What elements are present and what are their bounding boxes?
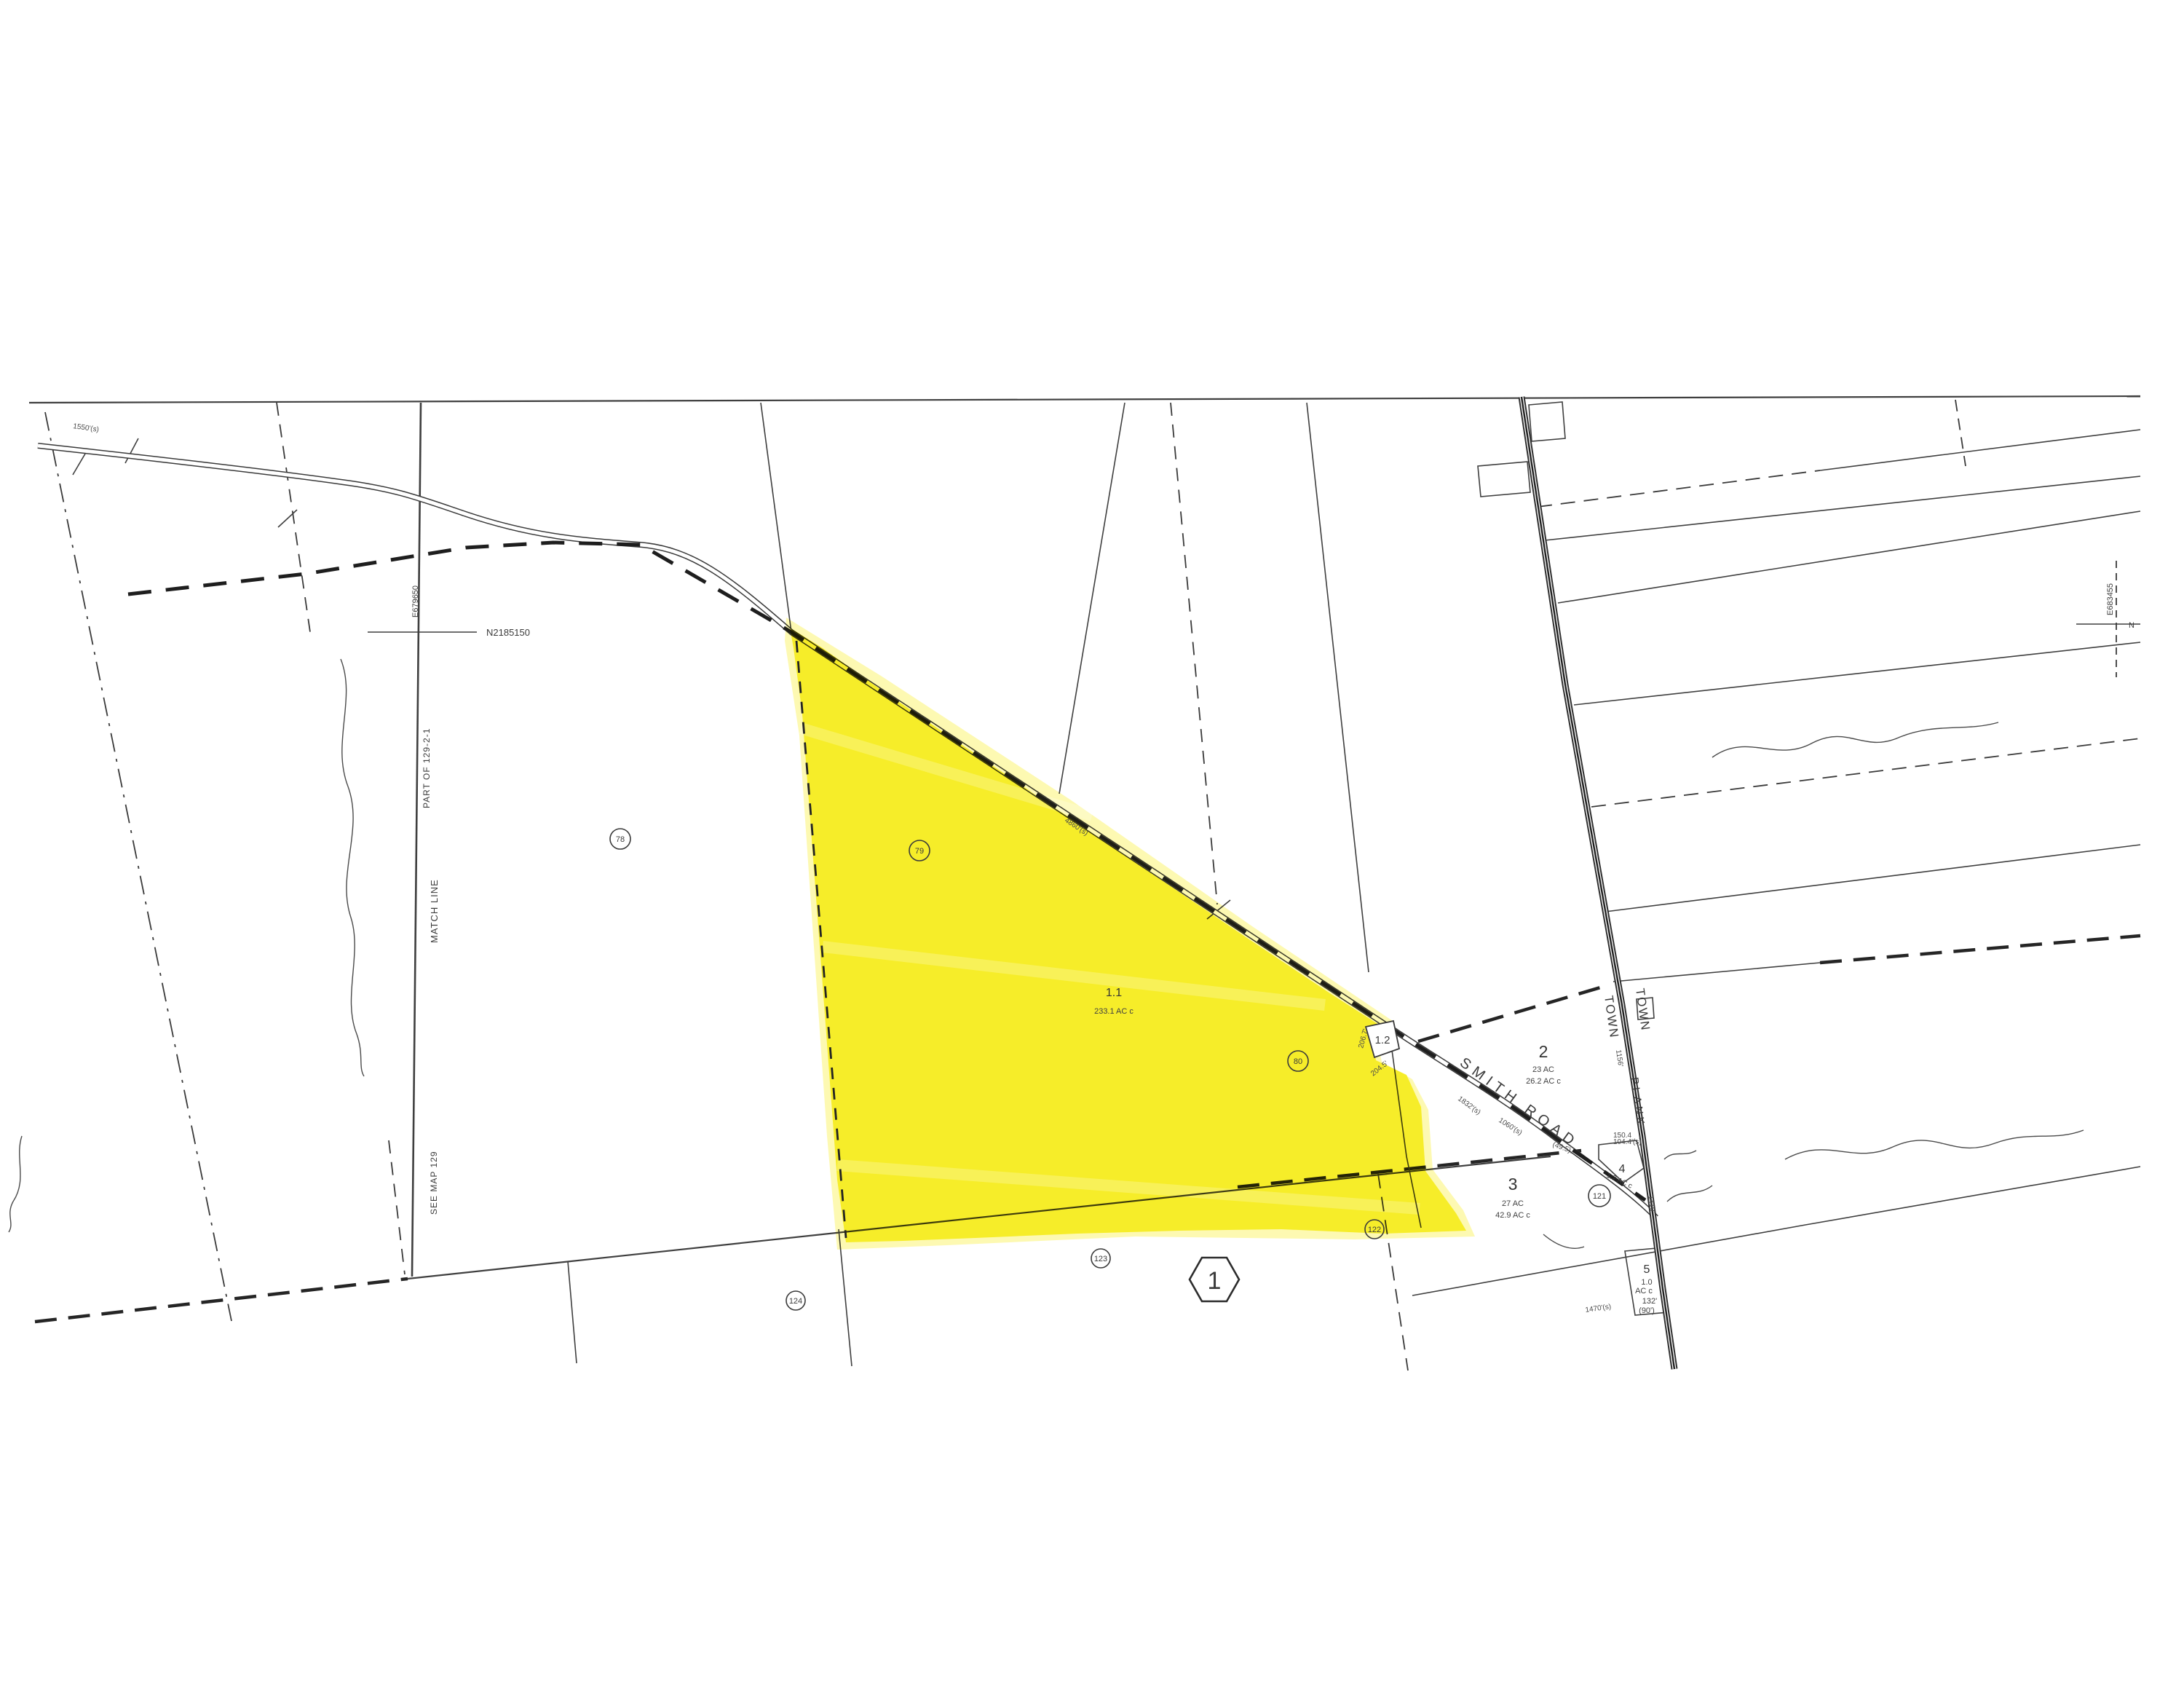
parcel2-north-dashed xyxy=(1418,985,1610,1041)
flag-parcel-a xyxy=(1529,402,1565,441)
strip-line-4 xyxy=(1574,642,2140,705)
lot-circle-123: 123 xyxy=(1091,1249,1110,1268)
parcel5-id-label: 5 xyxy=(1644,1263,1650,1276)
match-line-label: MATCH LINE xyxy=(429,879,440,943)
stream-near-parcel4 xyxy=(1664,1151,1696,1159)
plank-road-town-line xyxy=(1522,397,1674,1369)
dashed-line-near-matchline xyxy=(389,1140,405,1274)
lot-121-label: 121 xyxy=(1593,1192,1606,1201)
sheet-number-label: 1 xyxy=(1208,1267,1222,1295)
line-to-apex xyxy=(761,403,791,632)
strip-line-1-solid xyxy=(1820,430,2140,470)
midline-a xyxy=(1059,403,1125,794)
flag-parcel-b xyxy=(1478,462,1530,497)
stream-southwest xyxy=(9,1136,22,1232)
lot-122-label: 122 xyxy=(1368,1226,1381,1234)
lot-80-label: 80 xyxy=(1294,1057,1302,1066)
dim-1060: 1060'(s) xyxy=(1497,1116,1523,1137)
grid-tick-west: N2185150 E679650 xyxy=(368,585,530,638)
parcel11-area-label: 233.1 AC c xyxy=(1094,1007,1133,1016)
lot-circle-122: 122 xyxy=(1365,1220,1384,1239)
lot-79-label: 79 xyxy=(915,847,924,856)
parcel5-dim1-label: 132' xyxy=(1642,1297,1657,1306)
lot-78-label: 78 xyxy=(616,835,625,844)
parcel5-labels: 5 1.0 AC c 132' (90') 1470'(s) xyxy=(1585,1263,1657,1315)
grid-e-label-west: E679650 xyxy=(411,585,420,618)
lot-circle-78: 78 xyxy=(610,829,630,849)
grid-n-label-west: N2185150 xyxy=(486,627,530,638)
parcel5-area2-label: AC c xyxy=(1635,1287,1653,1295)
parcel5-dim2-label: (90') xyxy=(1639,1306,1655,1315)
strip-line-2 xyxy=(1545,476,2140,540)
stream-west xyxy=(341,659,364,1076)
grid-tick-east: E683455 N xyxy=(2076,561,2140,677)
dim-1550: 1550'(s) xyxy=(73,422,100,434)
dim-1156: 1156' xyxy=(1614,1049,1624,1068)
dim-1832: 1832'(s) xyxy=(1456,1095,1481,1117)
north-boundary-line xyxy=(29,396,2140,403)
topright-short-dash xyxy=(1955,400,1966,466)
stream-below-junction xyxy=(1543,1234,1584,1248)
west-dash-dot-line xyxy=(45,412,232,1321)
midline-c xyxy=(1307,403,1369,972)
parcel4-dim2-label: 104.4'(s) xyxy=(1613,1138,1642,1146)
southeast-boundary xyxy=(1412,1167,2140,1295)
grid-e-label-east: E683455 xyxy=(2106,583,2115,615)
parcel4-id-label: 4 xyxy=(1619,1163,1626,1175)
strip-line-3 xyxy=(1558,511,2140,603)
parcel3-labels: 3 27 AC 42.9 AC c xyxy=(1495,1175,1530,1220)
south-boundary-dashed xyxy=(35,1279,408,1322)
sheet-number-hexagon: 1 xyxy=(1190,1258,1239,1301)
highlighted-parcel-1-1 xyxy=(785,618,1475,1250)
parcel3-area-calc-label: 42.9 AC c xyxy=(1495,1211,1530,1220)
dashed-line-topleft xyxy=(277,403,310,632)
parcel2-id-label: 2 xyxy=(1539,1042,1548,1061)
stream-near-lot121 xyxy=(1667,1186,1712,1202)
boundary-tick-1 xyxy=(568,1261,577,1363)
parcel11-id-label: 1.1 xyxy=(1106,987,1122,999)
plank-road-label: PLANK xyxy=(1628,1076,1647,1128)
strip-line-6 xyxy=(1605,845,2140,912)
town-label-east: TOWN xyxy=(1633,987,1653,1033)
lot-circle-80: 80 xyxy=(1288,1051,1308,1071)
parcel3-id-label: 3 xyxy=(1508,1175,1518,1194)
scanned-tax-map-page: 1.2 206.7' 204.5' N2185150 E679650 E6834… xyxy=(0,0,2184,1688)
parcel2-area-deed-label: 23 AC xyxy=(1532,1065,1554,1074)
lot-circle-121: 121 xyxy=(1588,1185,1610,1207)
edge-labels: MATCH LINE SEE MAP 129 PART OF 129-2-1 xyxy=(422,728,440,1215)
parcel12-id-label: 1.2 xyxy=(1375,1034,1390,1046)
parcel5-dim3-label: 1470'(s) xyxy=(1585,1303,1612,1314)
parcel3-area-deed-label: 27 AC xyxy=(1502,1199,1524,1208)
lot-123-label: 123 xyxy=(1094,1255,1107,1263)
tax-map-canvas: 1.2 206.7' 204.5' N2185150 E679650 E6834… xyxy=(0,0,2184,1688)
strip-line-5-dashed xyxy=(1591,738,2140,807)
match-line xyxy=(412,403,421,1277)
see-map-label: SEE MAP 129 xyxy=(429,1151,439,1215)
lot-circle-124: 124 xyxy=(786,1291,805,1310)
stream-east-lower xyxy=(1785,1130,2084,1159)
lot-circle-79: 79 xyxy=(909,840,930,861)
lot-124-label: 124 xyxy=(789,1297,802,1306)
part-of-parcel-label: PART OF 129-2-1 xyxy=(422,728,432,808)
stream-east-mid xyxy=(1712,722,1998,757)
parcel5-area1-label: 1.0 xyxy=(1641,1278,1652,1287)
strip-line-1-dashed xyxy=(1538,470,1820,507)
midline-b-dashed xyxy=(1171,403,1217,904)
parcel2-labels: 2 23 AC 26.2 AC c xyxy=(1526,1042,1561,1086)
boundary-tick-2 xyxy=(839,1229,852,1366)
strip-line-7 xyxy=(1613,963,1820,982)
strip-line-7-dashed xyxy=(1820,936,2140,963)
grid-n-label-east: N xyxy=(2129,621,2134,630)
parcel2-area-calc-label: 26.2 AC c xyxy=(1526,1077,1561,1086)
